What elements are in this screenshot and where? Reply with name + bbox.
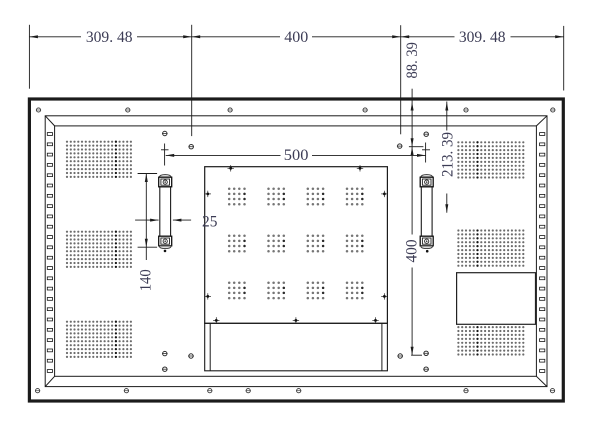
svg-text:400: 400 (403, 240, 420, 263)
svg-text:400: 400 (284, 29, 308, 46)
svg-text:500: 500 (284, 147, 309, 164)
svg-text:25: 25 (202, 214, 217, 231)
svg-text:309. 48: 309. 48 (459, 29, 506, 46)
svg-text:309. 48: 309. 48 (86, 29, 133, 46)
svg-text:140: 140 (138, 269, 155, 291)
svg-text:213. 39: 213. 39 (440, 132, 457, 177)
svg-text:88. 39: 88. 39 (404, 42, 421, 78)
